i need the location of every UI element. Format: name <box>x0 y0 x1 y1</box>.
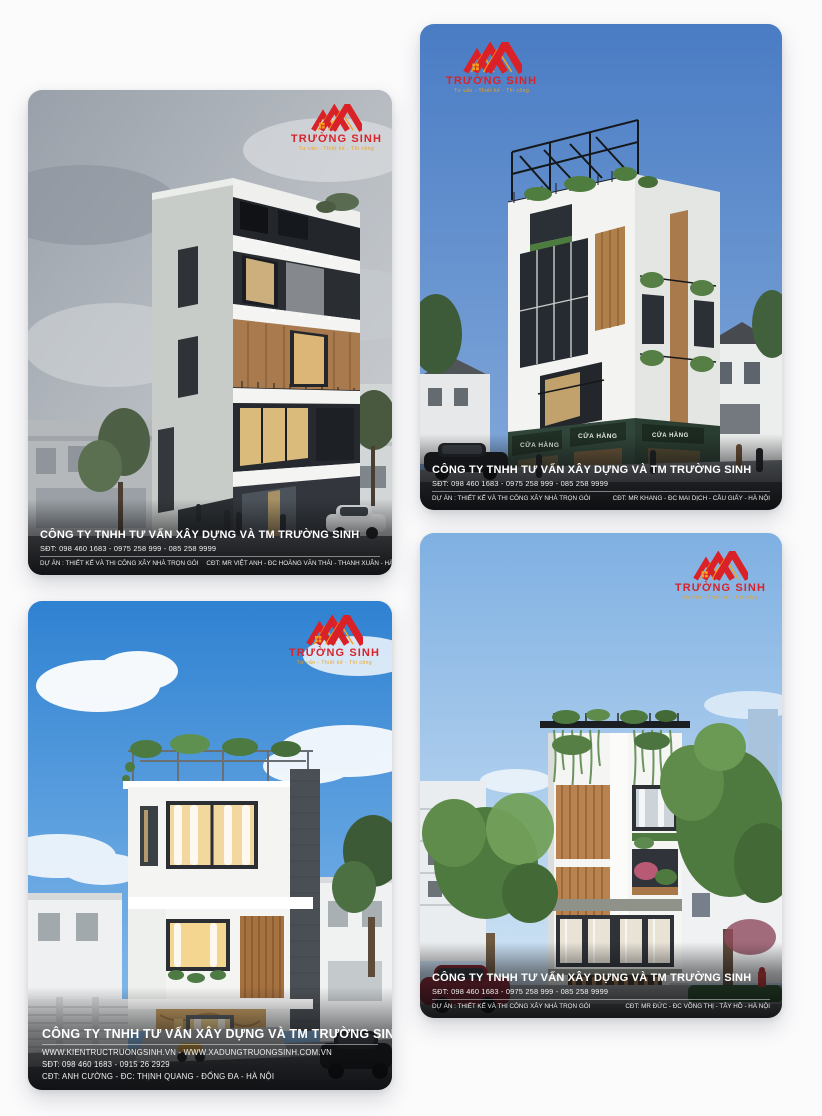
caption-overlay: CÔNG TY TNHH TƯ VẤN XÂY DỰNG VÀ TM TRƯỜN… <box>28 499 392 575</box>
caption-divider <box>40 556 380 557</box>
caption-divider <box>432 999 770 1000</box>
logo-name: TRƯỜNG SINH <box>291 134 382 145</box>
roof-logo-icon <box>462 42 522 74</box>
company-title: CÔNG TY TNHH TƯ VẤN XÂY DỰNG VÀ TM TRƯỜN… <box>42 1027 378 1041</box>
phone-line: SĐT: 098 460 1683 - 0975 258 999 - 085 2… <box>40 544 380 553</box>
render-card-bottom-left[interactable]: TRƯỜNG SINH Tư vấn - Thiết kế - Thi công… <box>28 601 392 1090</box>
caption-overlay: CÔNG TY TNHH TƯ VẤN XÂY DỰNG VÀ TM TRƯỜN… <box>420 942 782 1018</box>
phone-line: SĐT: 098 460 1683 - 0915 26 2929 <box>42 1060 378 1069</box>
logo-tagline: Tư vấn - Thiết kế - Thi công <box>299 147 375 152</box>
company-title: CÔNG TY TNHH TƯ VẤN XÂY DỰNG VÀ TM TRƯỜN… <box>432 464 770 476</box>
phone-line: SĐT: 098 460 1683 - 0975 258 999 - 085 2… <box>432 479 770 488</box>
logo-tagline: Tư vấn - Thiết kế - Thi công <box>454 89 530 94</box>
owner-label: CĐT: ANH CƯỜNG - ĐC: THỊNH QUANG - ĐỐNG … <box>42 1072 378 1081</box>
logo-name: TRƯỜNG SINH <box>446 76 537 87</box>
logo-name: TRƯỜNG SINH <box>675 583 766 594</box>
owner-label: CĐT: MR ĐỨC - ĐC VÕNG THỊ - TÂY HỒ - HÀ … <box>625 1003 770 1010</box>
truong-sinh-logo: TRƯỜNG SINH Tư vấn - Thiết kế - Thi công <box>675 551 766 601</box>
websites-line: WWW.KIENTRUCTRUONGSINH.VN - WWW.XADUNGTR… <box>42 1048 378 1057</box>
render-card-top-left[interactable]: TRƯỜNG SINH Tư vấn - Thiết kế - Thi công… <box>28 90 392 575</box>
truong-sinh-logo: TRƯỜNG SINH Tư vấn - Thiết kế - Thi công <box>289 615 380 666</box>
truong-sinh-logo: TRƯỜNG SINH Tư vấn - Thiết kế - Thi công <box>291 104 382 152</box>
owner-label: CĐT: MR VIỆT ANH - ĐC HOÀNG VĂN THÁI - T… <box>206 560 392 567</box>
logo-name: TRƯỜNG SINH <box>289 648 380 659</box>
caption-divider <box>42 1044 378 1045</box>
roof-logo-icon <box>692 551 748 581</box>
phone-line: SĐT: 098 460 1683 - 0975 258 999 - 085 2… <box>432 987 770 996</box>
render-card-top-right[interactable]: CỬA HÀNG CỬA HÀNG CỬA HÀNG <box>420 24 782 510</box>
render-card-bottom-right[interactable]: TRƯỜNG SINH Tư vấn - Thiết kế - Thi công… <box>420 533 782 1018</box>
logo-tagline: Tư vấn - Thiết kế - Thi công <box>297 661 373 666</box>
company-title: CÔNG TY TNHH TƯ VẤN XÂY DỰNG VÀ TM TRƯỜN… <box>432 972 770 984</box>
caption-overlay: CÔNG TY TNHH TƯ VẤN XÂY DỰNG VÀ TM TRƯỜN… <box>420 434 782 510</box>
roof-logo-icon <box>305 615 363 646</box>
project-label: DỰ ÁN : THIẾT KẾ VÀ THI CÔNG XÂY NHÀ TRỌ… <box>40 560 198 567</box>
truong-sinh-logo: TRƯỜNG SINH Tư vấn - Thiết kế - Thi công <box>446 42 537 94</box>
project-label: DỰ ÁN : THIẾT KẾ VÀ THI CÔNG XÂY NHÀ TRỌ… <box>432 495 590 502</box>
roof-logo-icon <box>310 104 362 132</box>
company-title: CÔNG TY TNHH TƯ VẤN XÂY DỰNG VÀ TM TRƯỜN… <box>40 529 380 541</box>
caption-overlay: CÔNG TY TNHH TƯ VẤN XÂY DỰNG VÀ TM TRƯỜN… <box>28 987 392 1090</box>
project-label: DỰ ÁN : THIẾT KẾ VÀ THI CÔNG XÂY NHÀ TRỌ… <box>432 1003 590 1010</box>
caption-divider <box>432 491 770 492</box>
logo-tagline: Tư vấn - Thiết kế - Thi công <box>683 596 759 601</box>
owner-label: CĐT: MR KHANG - ĐC MAI DỊCH - CẦU GIẤY -… <box>613 495 770 502</box>
gallery-page: { "logo": { "name": "TRƯỜNG SINH", "tagl… <box>0 0 822 1116</box>
